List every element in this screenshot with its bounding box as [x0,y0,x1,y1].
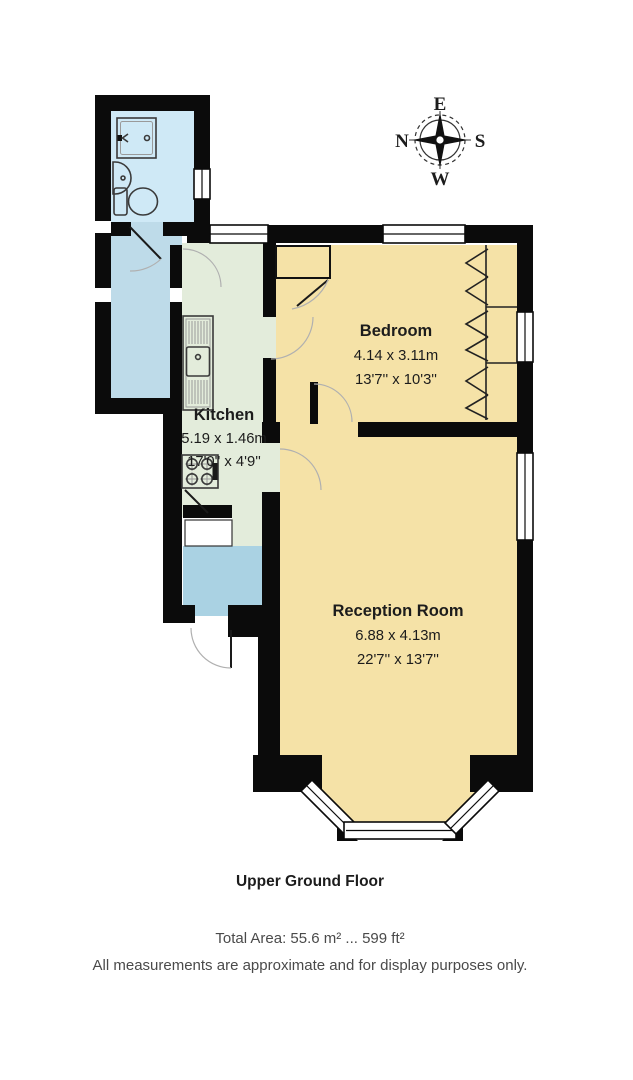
kitchen-floor [182,243,263,517]
bedroom-east-window [517,312,533,362]
kitchen-imperial: 17'0'' x 4'9'' [187,454,261,470]
floorplan-drawing: E N S W Kitchen 5.19 x 1.46m 17'0'' x 4'… [0,0,633,1080]
reception-metric: 6.88 x 4.13m [355,628,441,644]
compass-west-label: W [431,169,450,190]
compass-south-label: S [475,131,486,152]
bedroom-window [383,225,465,243]
hall-cupboard [185,520,232,546]
bedroom-name: Bedroom [360,322,432,340]
floor-title: Upper Ground Floor [236,873,384,890]
kitchen-metric: 5.19 x 1.46m [181,431,267,447]
reception-name: Reception Room [332,602,463,620]
compass-rose: E N S W [395,94,485,190]
kitchen-top-window [210,225,268,243]
bedroom-metric: 4.14 x 3.11m [354,348,438,364]
kitchen-vestibule-floor [232,505,262,546]
floorplan-page: E N S W Kitchen 5.19 x 1.46m 17'0'' x 4'… [0,0,633,1080]
bedroom-imperial: 13'7'' x 10'3'' [355,372,437,388]
total-area-text: Total Area: 55.6 m² ... 599 ft² [215,930,404,947]
compass-north-label: N [395,131,409,152]
kitchen-name: Kitchen [194,406,255,424]
reception-imperial: 22'7'' x 13'7'' [357,652,439,668]
kitchen-reception-doorway-floor [262,443,281,492]
footer: Upper Ground Floor Total Area: 55.6 m² .… [93,873,528,974]
disclaimer-text: All measurements are approximate and for… [93,957,528,974]
bathroom-window [194,169,210,199]
compass-east-label: E [434,94,447,115]
kitchen-bedroom-doorway-floor [263,317,276,358]
bedroom-door-leaf [310,382,318,424]
front-entrance-door [191,628,231,668]
reception-east-window [517,453,533,540]
